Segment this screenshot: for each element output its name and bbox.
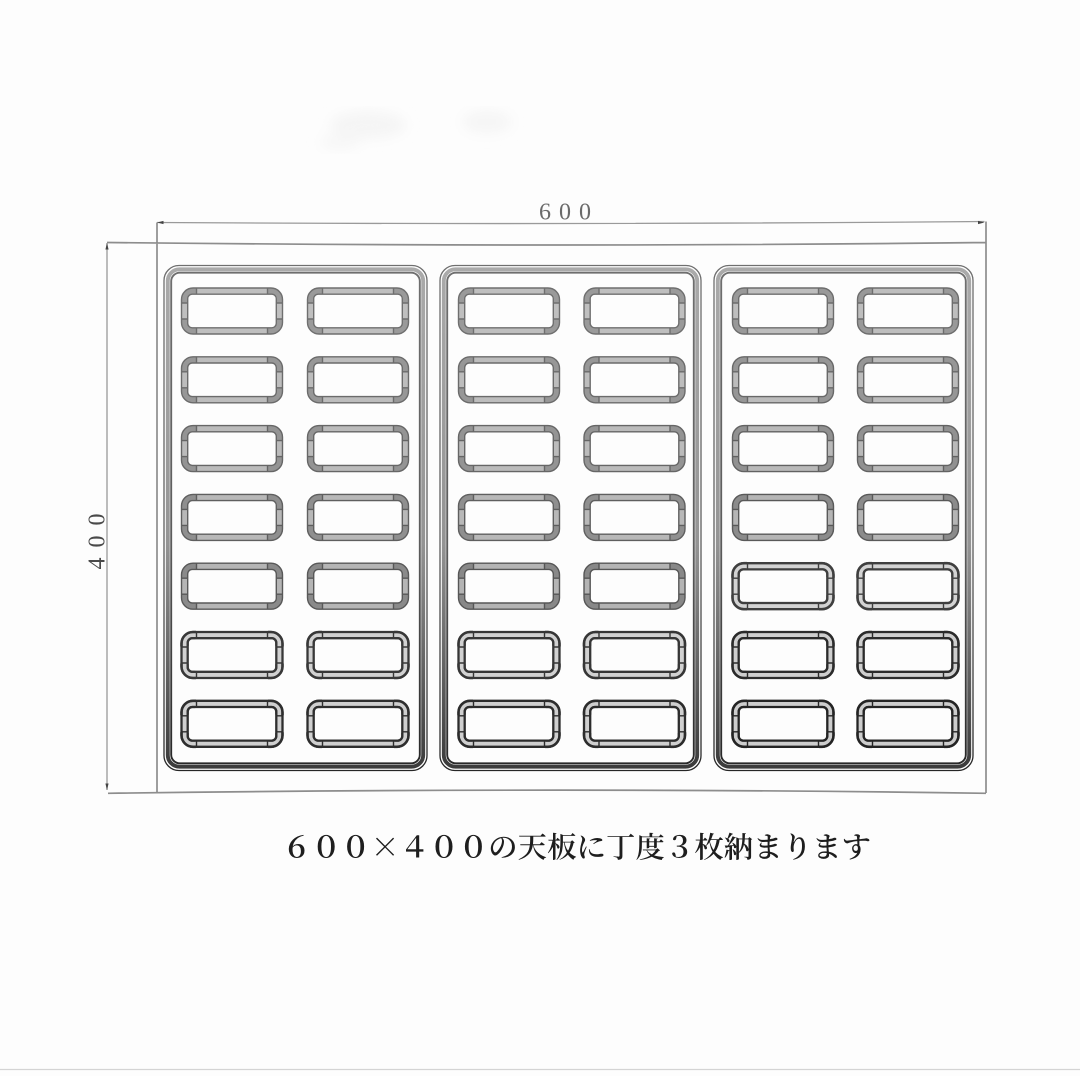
- svg-text:600: 600: [539, 200, 599, 226]
- svg-text:400: 400: [85, 504, 111, 570]
